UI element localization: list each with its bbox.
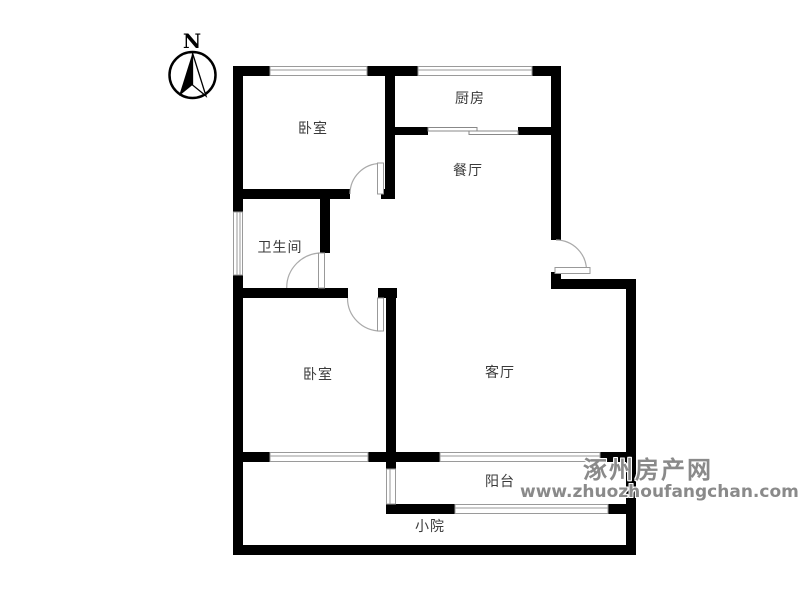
floorplan-drawing	[0, 0, 800, 600]
wall-bathroom-bottom	[233, 288, 348, 298]
room-label-living: 客厅	[485, 362, 515, 382]
wall-living-top-extension	[551, 279, 636, 289]
window-kitchen-top	[418, 67, 532, 76]
doors	[287, 163, 590, 331]
door-bedroom2	[348, 298, 384, 331]
watermark: 涿州房产网 www.zhuozhoufangchan.com	[520, 458, 776, 501]
wall-kitchen-bottom-right	[518, 127, 561, 135]
room-label-bedroom-top: 卧室	[298, 118, 328, 138]
wall-kitchen-bottom-left	[395, 127, 428, 135]
room-label-balcony: 阳台	[485, 471, 515, 491]
sliding-window-kitchen-dining	[428, 128, 518, 135]
door-bathroom	[287, 253, 325, 288]
window-balcony-bottom	[455, 505, 608, 514]
wall-bathroom-right	[320, 199, 330, 253]
window-bathroom-left	[234, 212, 243, 275]
wall-bedroom1-bottom	[233, 189, 350, 199]
room-label-bedroom-bottom: 卧室	[303, 364, 333, 384]
window-bedroom2-bottom	[270, 453, 368, 462]
room-label-kitchen: 厨房	[455, 88, 485, 108]
wall-right-upper-seg	[551, 66, 561, 240]
north-label: N	[183, 29, 201, 53]
window-bedroom1-top	[270, 67, 367, 76]
door-entry	[555, 240, 590, 274]
window-balcony-left	[387, 469, 396, 504]
wall-left-lower-seg	[233, 275, 243, 555]
room-label-bathroom: 卫生间	[258, 237, 303, 257]
wall-balcony-left-stub	[386, 462, 396, 469]
wall-balcony-bottom-right	[608, 504, 636, 514]
wall-bottom-left-seg	[233, 452, 270, 462]
wall-yard-bottom	[233, 545, 636, 555]
interior-walls	[233, 66, 636, 514]
wall-bedroom1-right	[385, 66, 395, 199]
wall-balcony-bottom-left	[386, 504, 455, 514]
wall-bedroom2-right	[386, 288, 396, 462]
room-label-yard: 小院	[415, 516, 445, 536]
door-bedroom1	[350, 163, 384, 194]
north-compass-icon	[170, 52, 216, 98]
room-label-dining: 餐厅	[453, 160, 483, 180]
watermark-site-name: 涿州房产网	[520, 458, 776, 482]
wall-bottom-mid-seg	[368, 452, 440, 462]
floorplan-canvas: N 卧室 厨房 餐厅 卫生间 卧室 客厅 阳台 小院 涿州房产网 www.zhu…	[0, 0, 800, 600]
watermark-site-url: www.zhuozhoufangchan.com	[520, 484, 776, 501]
